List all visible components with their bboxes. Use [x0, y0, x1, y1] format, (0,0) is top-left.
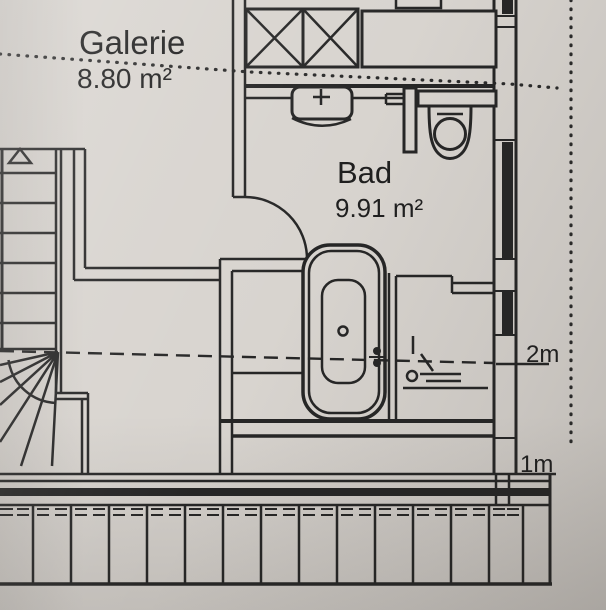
- height-label-1m: 1m: [520, 451, 553, 478]
- crossed-duct-shaft: [246, 9, 358, 67]
- built-in-cabinet: [362, 0, 496, 67]
- room-label-bad: Bad: [337, 155, 392, 190]
- window-glazing-top: [502, 0, 513, 14]
- bathtub-outer: [303, 245, 385, 419]
- height-label-2m: 2m: [526, 341, 559, 368]
- room-area-galerie: 8.80 m²: [77, 63, 172, 94]
- toilet-cistern: [418, 91, 496, 106]
- floor-plan: Galerie 8.80 m² Bad 9.91 m² 2m 1m: [0, 0, 606, 610]
- toilet-partition: [404, 88, 416, 152]
- cabinet-outline: [362, 11, 496, 67]
- window-glazing-middle: [502, 142, 513, 258]
- window-glazing-lower: [502, 292, 513, 334]
- washbasin: [292, 87, 352, 126]
- bathtub-tap-upper: [373, 347, 381, 355]
- floor-plan-drawing: Galerie 8.80 m² Bad 9.91 m² 2m 1m: [0, 0, 606, 610]
- room-area-bad: 9.91 m²: [335, 193, 423, 223]
- bathtub: [303, 245, 386, 419]
- room-label-galerie: Galerie: [79, 24, 185, 61]
